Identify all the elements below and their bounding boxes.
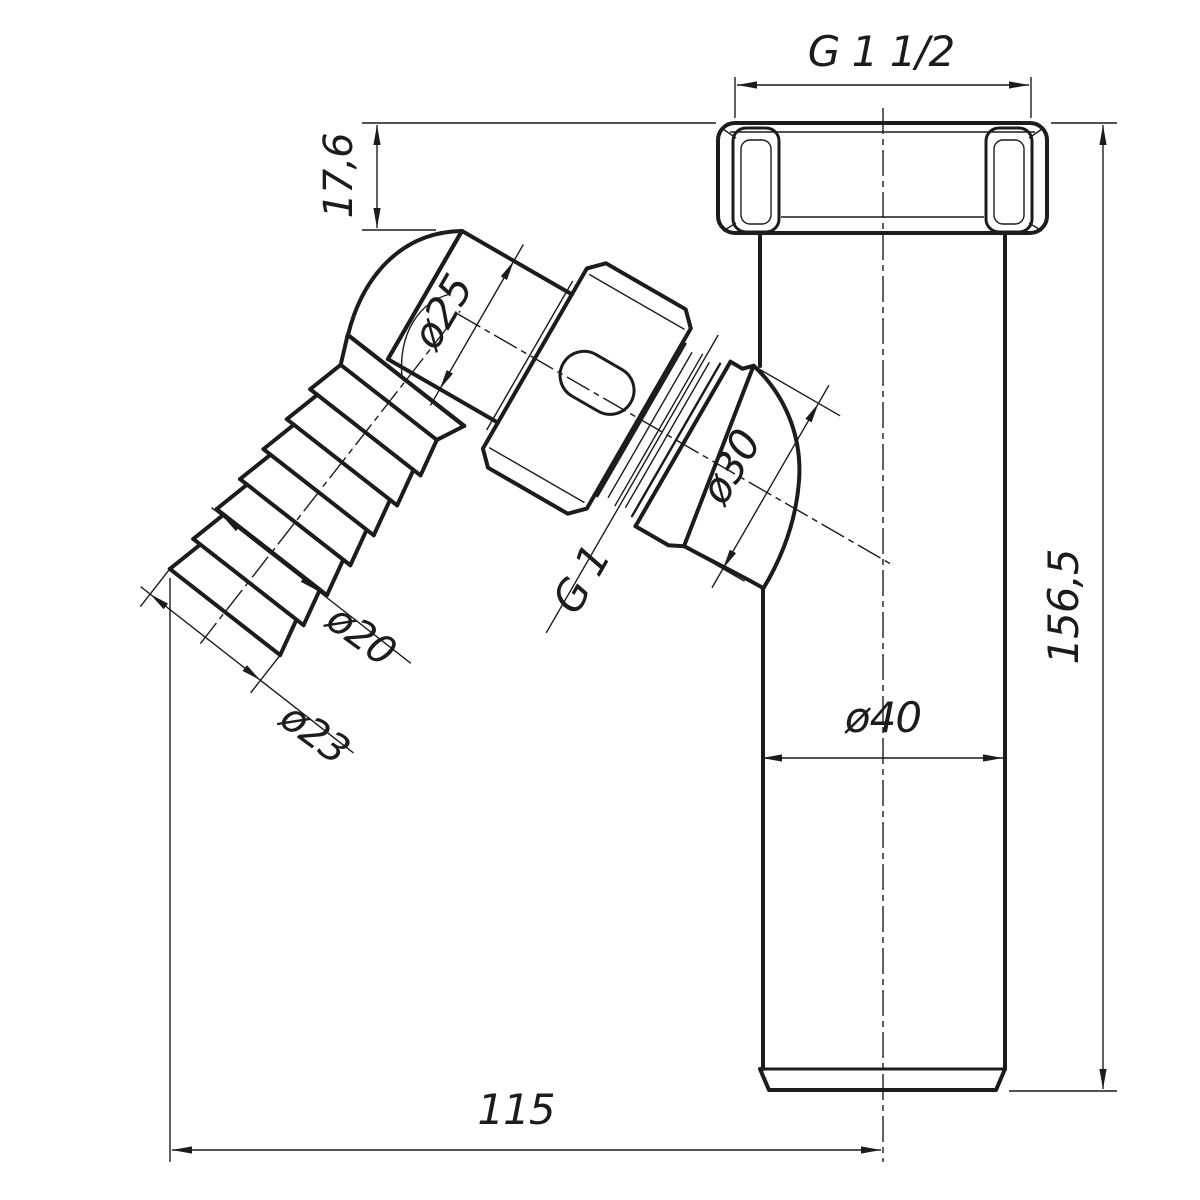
nut-grip-right-inner [994,140,1024,224]
technical-drawing-page: ø25 ø30 G 1 ø23 [0,0,1200,1200]
dim23-line [150,594,260,680]
union-nut-grip-window [551,343,643,424]
nut-back-face-line [487,281,573,430]
dim-label-total-height: 156,5 [1039,549,1088,664]
barb-tip-face [170,569,280,655]
technical-drawing: ø25 ø30 G 1 ø23 [0,0,1200,1200]
dim23-overshoot [141,587,150,594]
dim-17-extension-lines [362,123,716,230]
dim-label-elbow-pipe-dia: ø25 [401,267,482,358]
hose-barb-connector: ø23 ø20 [120,260,608,779]
dim-label-top-thread: G 1 1/2 [808,27,955,76]
bell-silhouette-arc [754,366,799,589]
dim-label-branch-thread: G 1 [543,537,620,622]
nut-grip-left [733,128,779,232]
dim-total-width: 115 [170,578,881,1162]
nut-grip-left-inner [741,140,771,224]
dim-label-offset-width: 115 [477,1085,554,1134]
dim-nut-height: 17,6 [316,123,716,230]
vertical-pipe [760,108,1005,1162]
dim-label-pipe-dia: ø40 [844,693,921,742]
dim-total-height: 156,5 [1009,123,1117,1091]
dim-label-hose-crest-dia: ø23 [271,693,357,773]
dim-thread-top: G 1 1/2 [735,27,1031,118]
branch-assembly: ø25 ø30 G 1 [308,187,955,766]
dim-branch-dia: ø30 [647,348,851,601]
dim-label-hose-valley-dia: ø20 [317,595,403,675]
nut-grip-right [986,128,1032,232]
dim-hose-crest-dia: ø23 [120,560,374,779]
dim-label-nut-height: 17,6 [316,133,362,218]
dim-hose-valley-dia: ø20 [191,496,420,690]
